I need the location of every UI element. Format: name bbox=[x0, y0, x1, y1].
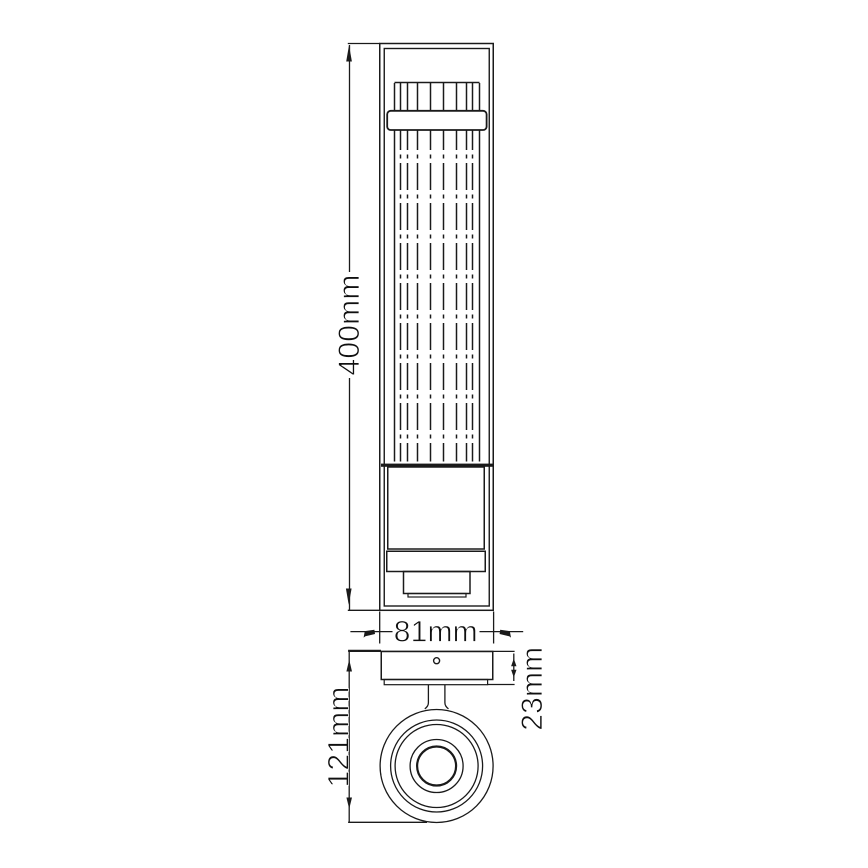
svg-text:23mm: 23mm bbox=[516, 647, 549, 731]
svg-text:121mm: 121mm bbox=[322, 686, 355, 787]
svg-text:81mm: 81mm bbox=[394, 615, 478, 648]
svg-text:400mm: 400mm bbox=[333, 274, 366, 375]
